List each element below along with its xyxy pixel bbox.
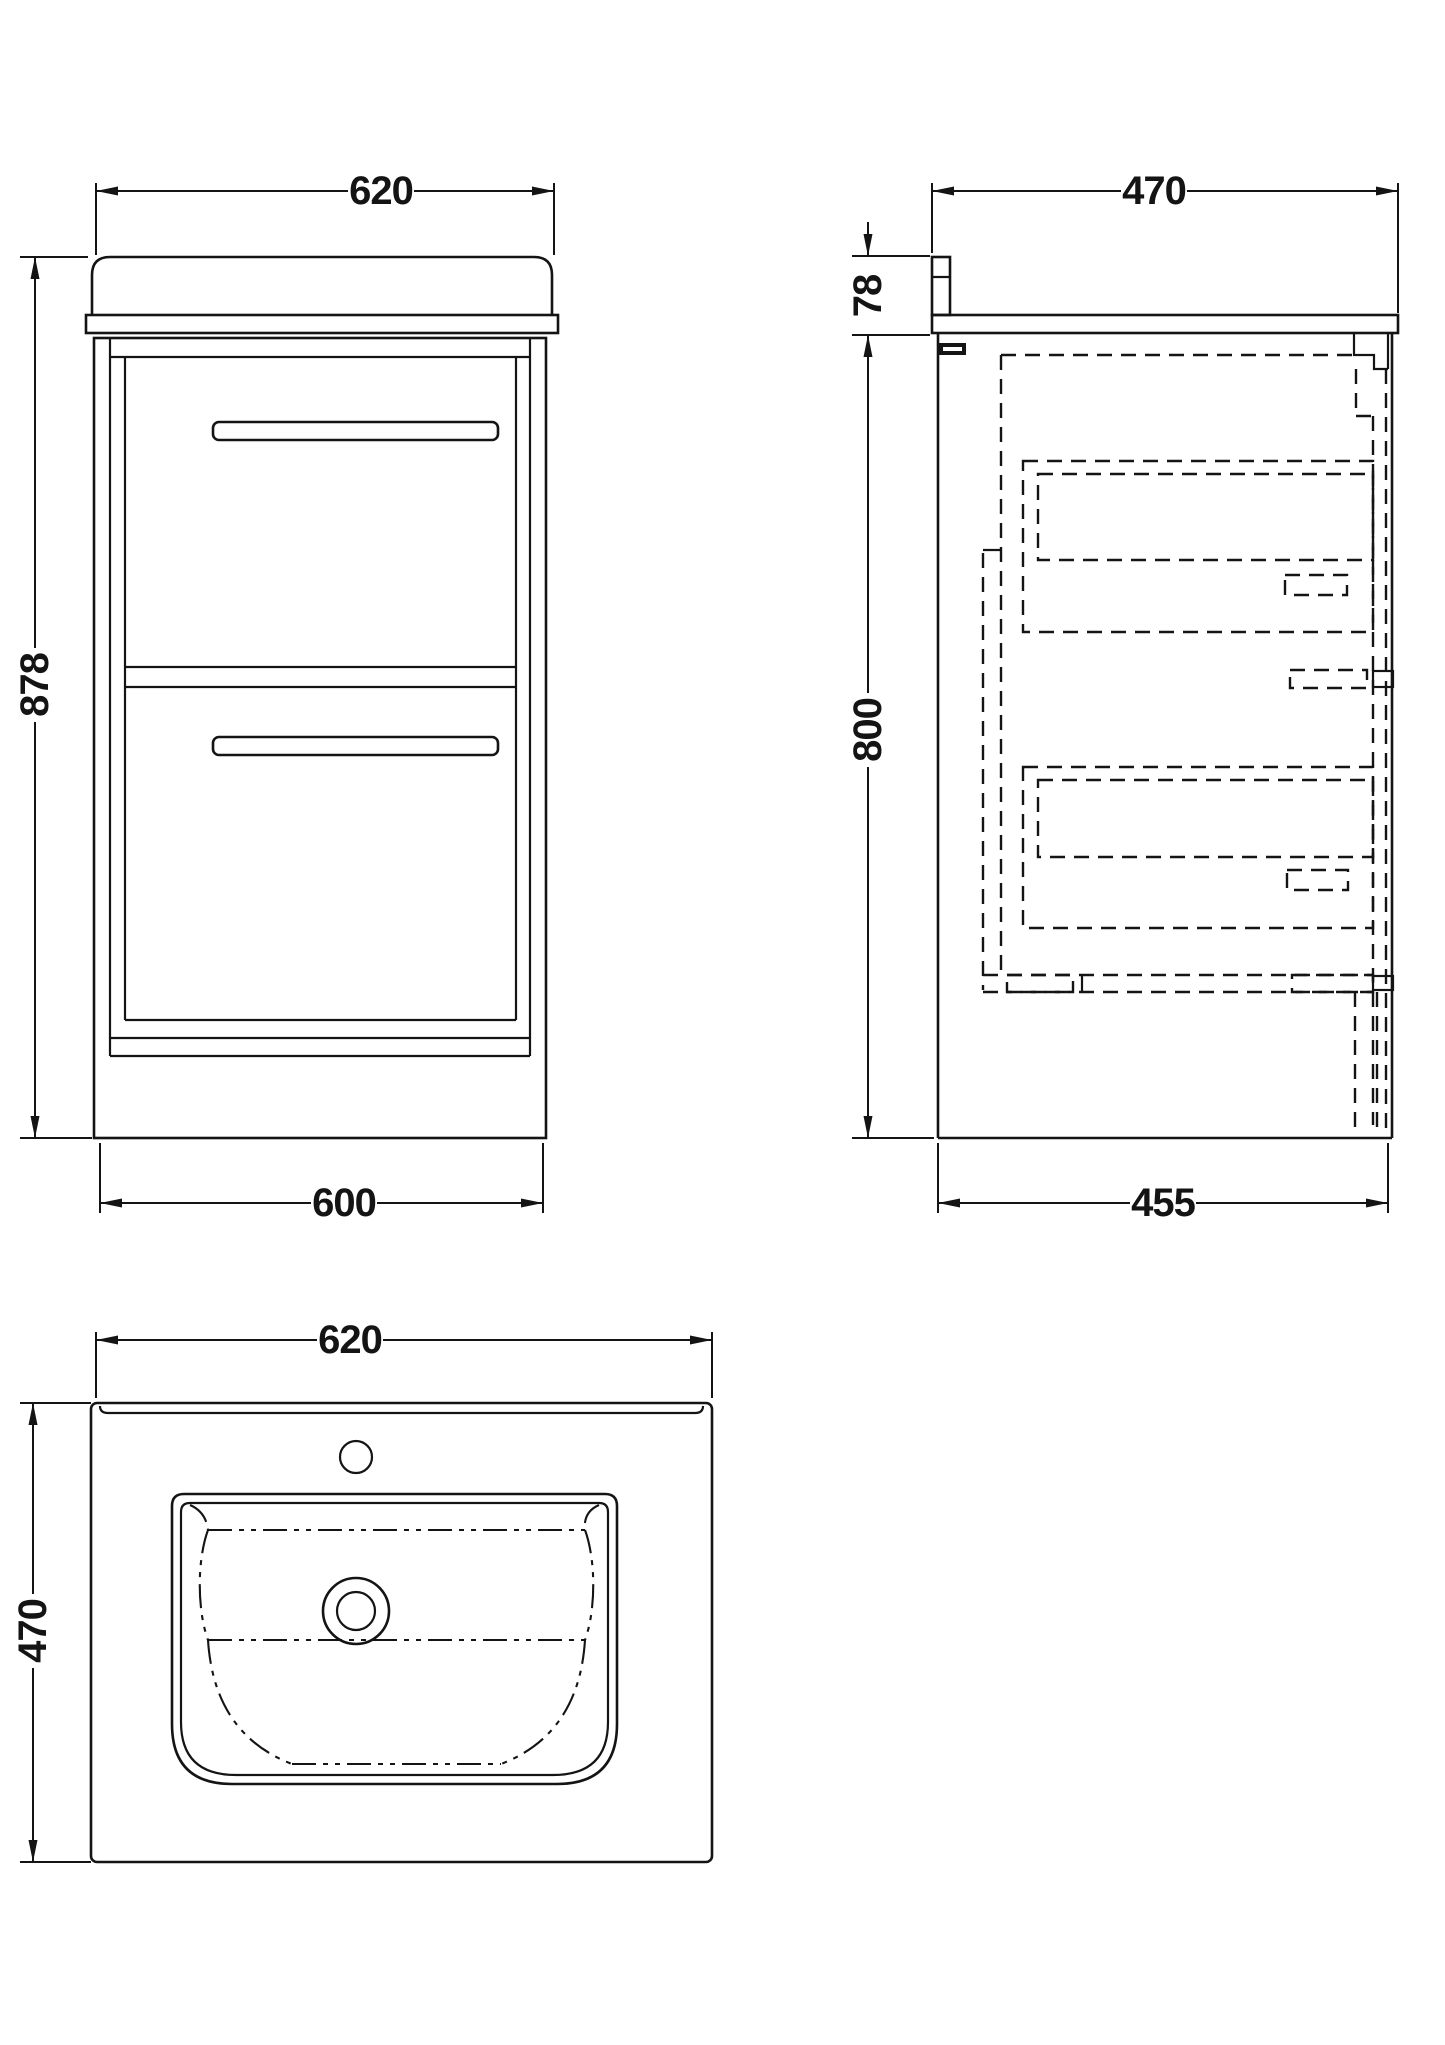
dim-front-width-bottom: 600 <box>100 1143 543 1225</box>
side-foot-back-step <box>1373 976 1393 990</box>
front-basin-top <box>92 257 552 315</box>
side-back-rail <box>1354 333 1388 369</box>
dim-label-side-depth-top: 470 <box>1122 169 1186 213</box>
front-cabinet-stiles <box>110 338 530 1056</box>
side-cabinet-outline <box>938 333 1392 1138</box>
front-handle-lower <box>213 737 498 755</box>
dim-side-depth-top: 470 <box>932 169 1398 313</box>
side-fixing-clip-slot <box>943 347 962 351</box>
dim-front-height: 878 <box>13 257 92 1138</box>
technical-drawing: 620 878 600 <box>0 0 1445 2045</box>
dim-label-side-cabinet-height: 800 <box>846 698 890 762</box>
side-drawer-lower <box>1023 767 1373 928</box>
dim-side-cabinet-height: 800 <box>846 335 934 1138</box>
front-basin-lip <box>86 315 558 333</box>
side-runner-upper <box>1285 575 1347 595</box>
side-floor-lines <box>983 975 1373 992</box>
plan-waste-outer <box>323 1578 389 1644</box>
plan-view: 620 470 <box>11 1318 712 1862</box>
side-wall-bracket-step <box>1373 671 1393 687</box>
dim-side-basin-height: 78 <box>846 222 930 335</box>
dim-label-front-width-top: 620 <box>349 169 413 213</box>
dim-label-side-depth-bottom: 455 <box>1131 1181 1195 1225</box>
front-cabinet-rails <box>110 357 530 1056</box>
front-handle-upper <box>213 422 498 440</box>
dim-side-depth-bottom: 455 <box>938 1143 1388 1225</box>
plan-back-edge-line <box>100 1406 703 1413</box>
side-tap-ledge <box>932 257 950 315</box>
front-view: 620 878 600 <box>13 169 558 1225</box>
side-view: 470 78 800 455 <box>846 169 1398 1225</box>
side-back-panel <box>1356 369 1386 1130</box>
dim-plan-width: 620 <box>96 1318 712 1398</box>
dim-label-side-basin-height: 78 <box>846 274 890 317</box>
side-drawer-upper <box>1023 461 1373 632</box>
side-counter-slab <box>932 315 1398 333</box>
plan-waste-inner <box>337 1592 375 1630</box>
side-foot-back <box>1292 975 1373 992</box>
plan-tap-hole <box>340 1441 372 1473</box>
plan-countertop-outline <box>91 1403 712 1862</box>
dim-front-width-top: 620 <box>96 169 554 255</box>
dim-plan-depth: 470 <box>11 1403 91 1862</box>
side-runner-lower <box>1287 870 1348 890</box>
dim-label-plan-depth: 470 <box>11 1599 55 1663</box>
side-foot-front <box>1007 975 1073 992</box>
plan-bowl-slope-lines <box>190 1505 599 1764</box>
dim-label-front-height: 878 <box>13 652 57 716</box>
side-wall-bracket <box>1290 670 1367 688</box>
dim-label-front-width-bottom: 600 <box>312 1181 376 1225</box>
dim-label-plan-width: 620 <box>318 1318 382 1362</box>
